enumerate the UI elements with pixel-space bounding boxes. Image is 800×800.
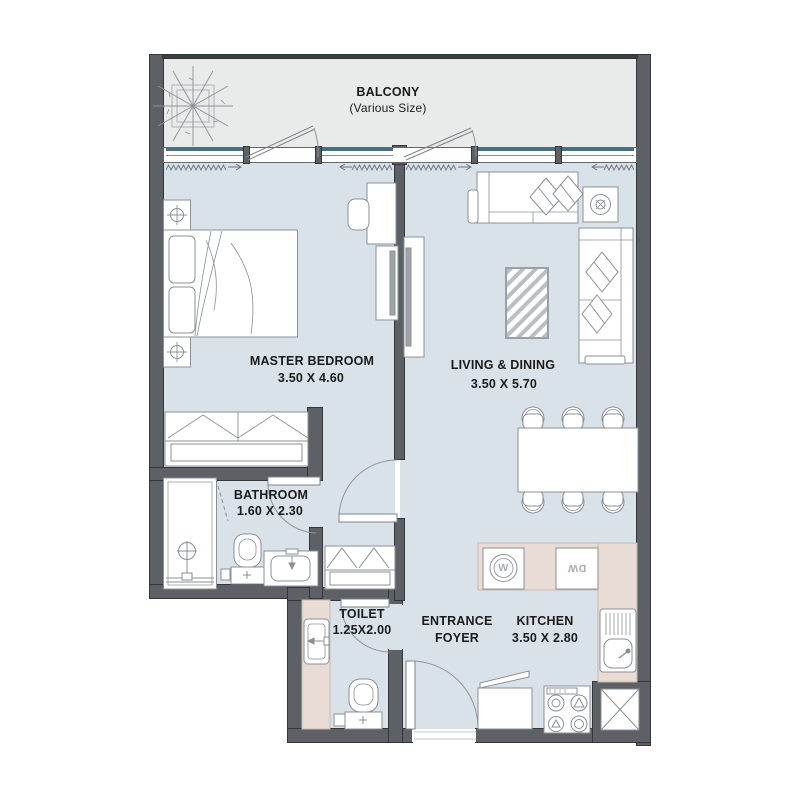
balcony-note: (Various Size)	[349, 101, 426, 115]
window-mullion	[244, 147, 249, 163]
wall	[163, 55, 637, 58]
balcony-label: BALCONY	[356, 85, 419, 99]
floor-plan: BALCONY (Various Size) MASTER BEDROOM 3.…	[0, 0, 800, 800]
wall	[150, 585, 308, 598]
window-mullion	[472, 147, 477, 163]
wall	[150, 55, 163, 598]
wall	[389, 650, 402, 742]
entrance-threshold	[412, 729, 476, 742]
washer-label: W	[498, 562, 508, 574]
dishwasher-label: DW	[568, 562, 587, 574]
wall	[310, 528, 322, 598]
window	[321, 147, 393, 151]
kitchen-label: KITCHEN	[517, 614, 574, 628]
window-mullion	[556, 147, 561, 163]
entrance-foyer-label-1: ENTRANCE	[421, 614, 492, 628]
entrance-foyer-label-2: FOYER	[435, 631, 479, 645]
wall	[308, 408, 322, 480]
bathroom-dims: 1.60 X 2.30	[237, 504, 303, 518]
wall	[288, 588, 402, 600]
toilet-dims: 1.25X2.00	[333, 623, 392, 637]
master-bedroom-dims: 3.50 X 4.60	[278, 371, 344, 385]
window	[166, 147, 244, 151]
wall	[288, 595, 302, 742]
window-frame	[166, 155, 244, 156]
window-frame	[321, 155, 393, 156]
window	[560, 147, 634, 151]
window	[477, 147, 556, 151]
wall	[150, 468, 312, 480]
wall	[395, 163, 404, 459]
master-bedroom-label: MASTER BEDROOM	[250, 354, 374, 368]
living-dining-dims: 3.50 X 5.70	[471, 377, 537, 391]
window-mullion	[316, 147, 321, 163]
toilet-label: TOILET	[339, 607, 384, 621]
wall	[637, 55, 650, 745]
living-dining-label: LIVING & DINING	[451, 358, 555, 372]
kitchen-dims: 3.50 X 2.80	[512, 631, 578, 645]
wall	[593, 682, 650, 742]
bathroom-label: BATHROOM	[234, 488, 308, 502]
wall	[395, 519, 404, 600]
